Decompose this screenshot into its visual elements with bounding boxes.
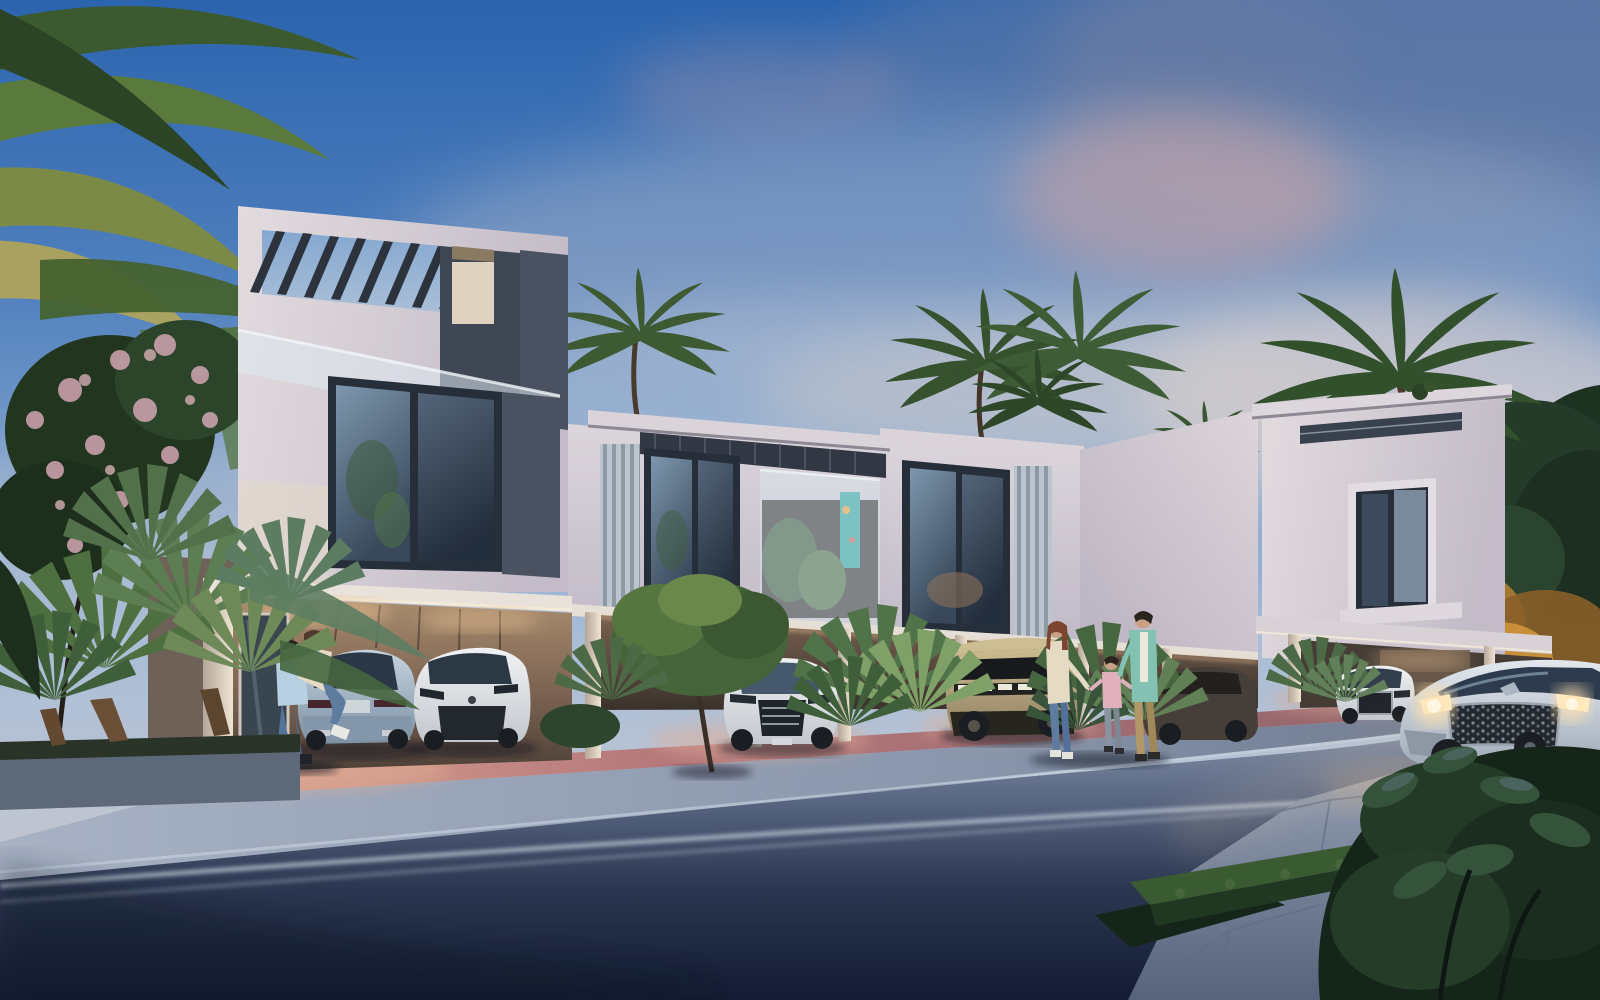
tower-lit-window — [452, 262, 494, 324]
scene-architectural-render — [0, 0, 1600, 1000]
left-tower — [238, 206, 568, 592]
right-window-box — [1348, 478, 1436, 618]
scene-artwork — [0, 0, 1600, 1000]
window-unit-c — [902, 460, 1010, 634]
compact-suv-front — [414, 648, 531, 750]
louver-screen-2 — [1014, 466, 1052, 638]
tower-slider-panel — [502, 392, 560, 578]
tower-window — [328, 376, 502, 572]
